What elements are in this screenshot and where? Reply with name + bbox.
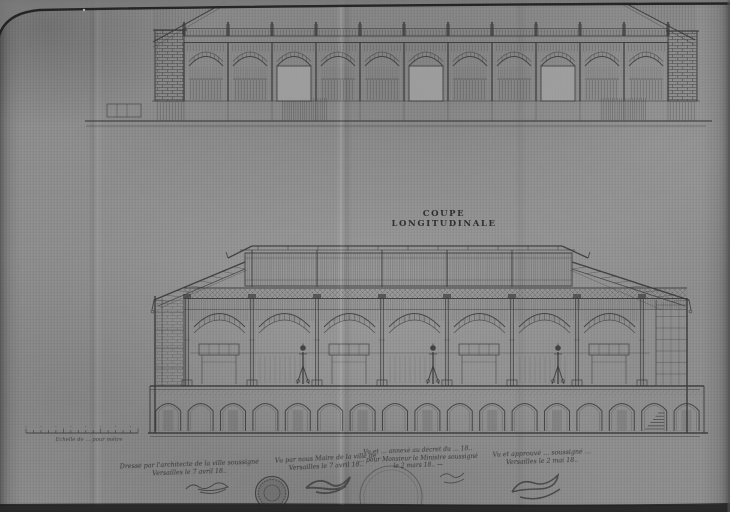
signature-prefect	[440, 473, 464, 483]
architectural-drawing	[0, 0, 730, 512]
lamp-post	[297, 344, 310, 385]
section-title: COUPE LONGITUDINALE	[368, 209, 520, 229]
lamp-post	[552, 344, 565, 385]
scanned-plan-photo: COUPE LONGITUDINALE Dressé par l'archite…	[0, 0, 730, 512]
signature-architect	[186, 483, 228, 494]
lamp-post	[427, 344, 440, 385]
section-drawing	[148, 246, 708, 437]
scale-caption: Echelle de … pour mètre	[42, 437, 136, 443]
scale-bar	[26, 426, 139, 433]
elevation-drawing	[85, 2, 712, 126]
handwritten-note-prefect: Vu et … annexé au décret du … 18.. … pou…	[352, 445, 485, 472]
signature-approval	[512, 475, 560, 499]
basement-arcade	[148, 391, 708, 437]
